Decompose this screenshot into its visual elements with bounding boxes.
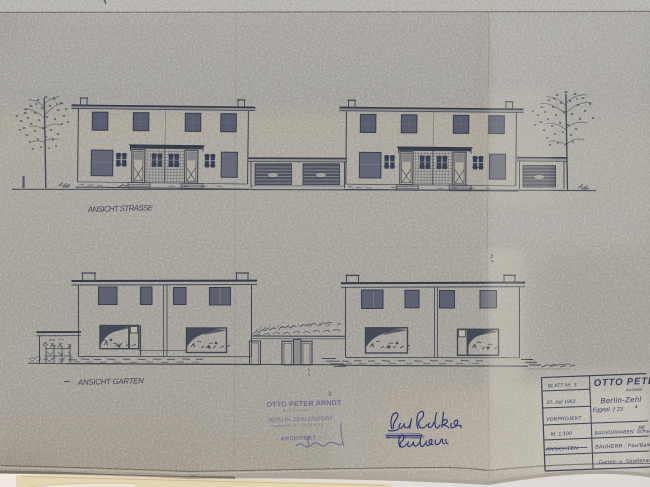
svg-text:ANSICHT STRASSE: ANSICHT STRASSE <box>87 203 154 214</box>
svg-text:· ARCHITEKT ·· . ·: · ARCHITEKT ·· . · <box>276 435 331 443</box>
svg-text:4: 4 <box>635 404 638 410</box>
svg-text:Eggepl. ƒ 23: Eggepl. ƒ 23 <box>593 406 623 413</box>
svg-text:BLATT Nr. 3: BLATT Nr. 3 <box>548 382 577 389</box>
svg-text:Architekt: Architekt <box>283 407 311 413</box>
svg-text:ANSICHT GARTEN: ANSICHT GARTEN <box>77 376 144 387</box>
svg-text:Garten- u. Straßenansi: Garten- u. Straßenansi <box>599 458 650 466</box>
svg-text:BAUVORHABEN: Schwarz: BAUVORHABEN: Schwarz <box>595 428 650 436</box>
svg-text:Architekt: Architekt <box>625 387 643 393</box>
svg-text:10. Juli 1963: 10. Juli 1963 <box>546 399 575 406</box>
svg-text:M. 1:100: M. 1:100 <box>551 431 573 438</box>
svg-text:ANSICHTEN: ANSICHTEN <box>545 446 578 453</box>
svg-text:VORPROJEKT: VORPROJEKT <box>546 416 583 423</box>
svg-text:Sophienstr. 25 · Tel. 84 52 82: Sophienstr. 25 · Tel. 84 52 82 <box>272 423 323 428</box>
svg-text:BAUHERR : Pau/Balkho: BAUHERR : Pau/Balkho <box>595 442 650 450</box>
